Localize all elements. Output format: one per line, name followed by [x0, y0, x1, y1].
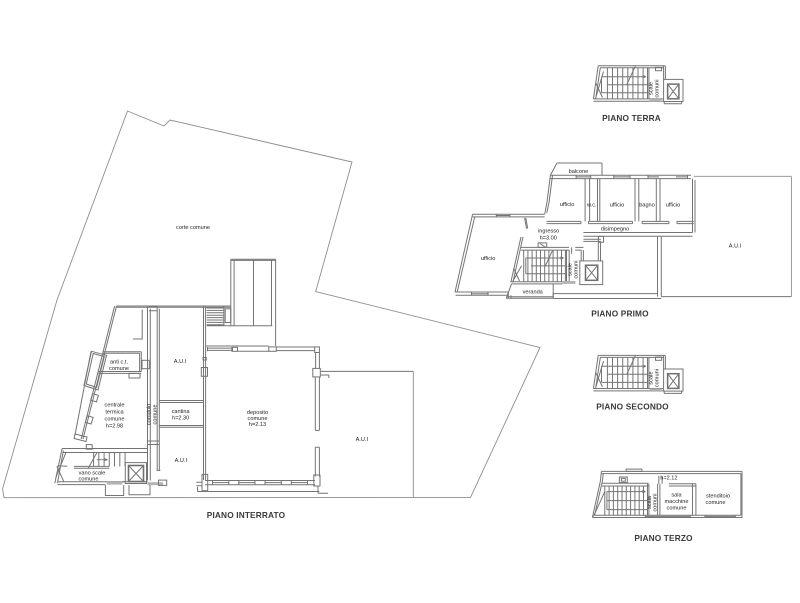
svg-text:comune: comune: [667, 506, 687, 512]
svg-text:comune: comune: [109, 366, 129, 372]
svg-text:h=2.12: h=2.12: [660, 476, 677, 482]
svg-text:termica: termica: [105, 410, 124, 416]
svg-text:comuni: comuni: [652, 493, 658, 511]
svg-text:comuni: comuni: [655, 369, 661, 387]
svg-text:disimpegno: disimpegno: [601, 227, 630, 233]
svg-text:ufficio: ufficio: [610, 202, 625, 208]
svg-text:comune: comune: [105, 417, 125, 423]
svg-text:A.U.I: A.U.I: [174, 359, 187, 365]
svg-text:PIANO INTERRATO: PIANO INTERRATO: [207, 510, 286, 520]
svg-text:stenditoio: stenditoio: [706, 494, 730, 500]
svg-text:vano scale: vano scale: [79, 470, 106, 476]
svg-text:h=2.13: h=2.13: [249, 422, 266, 428]
svg-text:PIANO TERRA: PIANO TERRA: [602, 113, 661, 123]
svg-text:comune: comune: [152, 405, 158, 425]
svg-text:comuni: comuni: [573, 260, 579, 278]
svg-text:PIANO TERZO: PIANO TERZO: [634, 533, 693, 543]
svg-text:h=2.98: h=2.98: [106, 424, 123, 430]
svg-text:scale: scale: [648, 372, 654, 385]
svg-text:ufficio: ufficio: [481, 256, 496, 262]
svg-text:macchine: macchine: [665, 499, 689, 505]
svg-text:comune: comune: [706, 500, 726, 506]
svg-text:PIANO SECONDO: PIANO SECONDO: [596, 402, 669, 412]
svg-text:A.U.I: A.U.I: [356, 437, 369, 443]
svg-text:h=3.00: h=3.00: [540, 235, 557, 241]
svg-text:ufficio: ufficio: [560, 202, 575, 208]
svg-text:balcone: balcone: [569, 169, 589, 175]
svg-text:corte comune: corte comune: [176, 225, 210, 231]
svg-text:centrale: centrale: [105, 403, 125, 409]
svg-text:ufficio: ufficio: [666, 202, 681, 208]
svg-text:w.c.: w.c.: [586, 202, 597, 208]
svg-text:A.U.I: A.U.I: [729, 244, 742, 250]
svg-text:scale: scale: [648, 82, 654, 95]
svg-text:ingresso: ingresso: [538, 228, 559, 234]
svg-text:A.U.I: A.U.I: [175, 458, 188, 464]
svg-text:veranda: veranda: [523, 290, 544, 296]
svg-text:PIANO PRIMO: PIANO PRIMO: [591, 309, 649, 319]
svg-text:bagno: bagno: [639, 202, 655, 208]
svg-text:cantina: cantina: [172, 409, 191, 415]
svg-text:anti c.t.: anti c.t.: [110, 360, 128, 366]
svg-text:h=2.30: h=2.30: [172, 416, 189, 422]
svg-text:sala: sala: [671, 492, 682, 498]
svg-text:comuni: comuni: [655, 79, 661, 97]
